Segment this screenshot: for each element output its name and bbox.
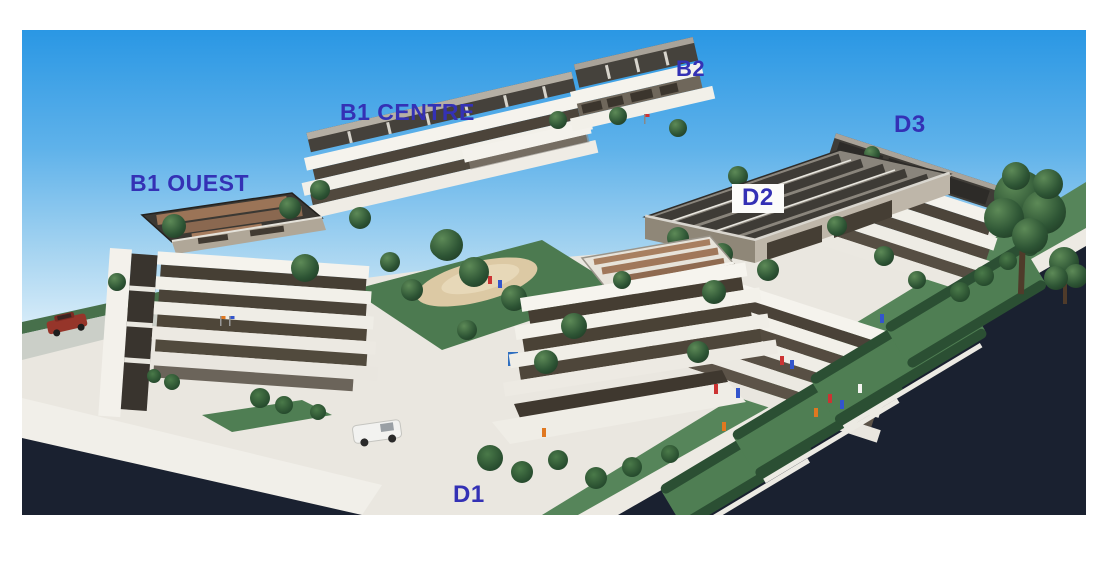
model-photo: B1 OUEST B1 CENTRE B2 D2 D3 D1 <box>22 30 1086 515</box>
building-label-b1-centre: B1 CENTRE <box>340 101 475 124</box>
scene-illustration <box>22 30 1086 515</box>
building-label-b1-ouest: B1 OUEST <box>130 172 249 195</box>
building-label-b2: B2 <box>676 58 705 80</box>
page-background: B1 OUEST B1 CENTRE B2 D2 D3 D1 <box>0 0 1109 564</box>
building-label-d2: D2 <box>732 184 784 213</box>
building-label-d1: D1 <box>453 483 485 507</box>
building-label-d3: D3 <box>894 113 926 137</box>
